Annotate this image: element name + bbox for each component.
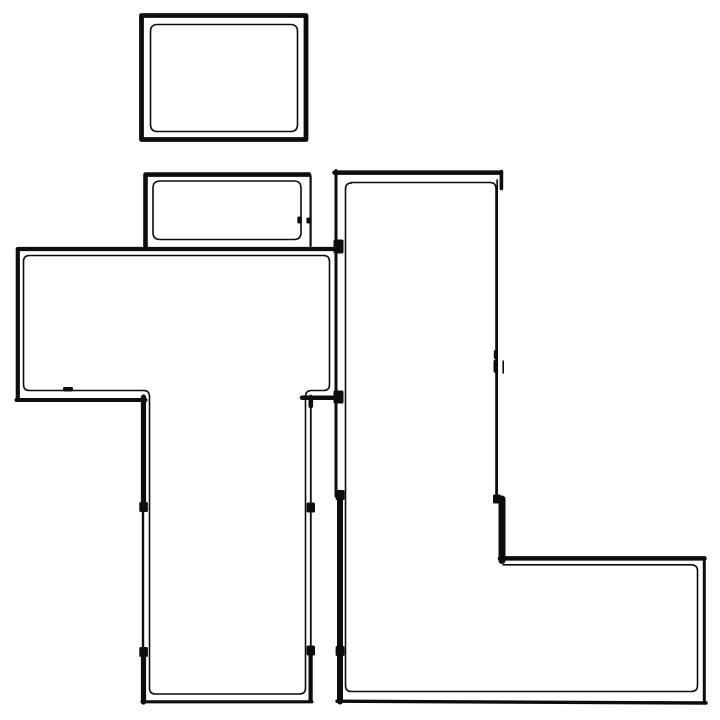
top-room-inner [151,25,298,132]
mid-room-inner [153,181,301,240]
door-tick-left-room-bottom [63,387,73,392]
l-room-inner-main [346,183,698,692]
l-room-inner-upper [351,183,496,501]
left-room-hall-inner [24,256,330,695]
junction-left-room-l-room [334,240,344,254]
door-tick-mid-room-a [297,217,302,224]
door-jamb-l-room-left-upper [336,490,345,500]
walls-inner-layer [24,25,698,695]
door-jamb-hall-right-upper [307,503,315,513]
door-marks-layer [63,217,501,658]
door-jamb-l-room-right [493,495,501,504]
door-jamb-l-room-left-lower [336,646,345,656]
floor-plan-svg [0,0,720,720]
top-room-outer [142,16,307,140]
l-room-bottom-wall [337,701,706,703]
door-jamb-hall-left-lower [139,647,148,657]
door-jamb-hall-right-lower [307,646,315,656]
left-room-top-left-outer [18,249,337,399]
floor-plan-canvas [0,0,720,720]
door-jamb-hall-left-upper [139,502,148,512]
mid-room-left-top-outer [146,175,310,247]
walls-outer-layer [17,16,707,704]
door-tick-mid-room-b [306,218,310,224]
junction-jog-l-room [334,391,344,404]
